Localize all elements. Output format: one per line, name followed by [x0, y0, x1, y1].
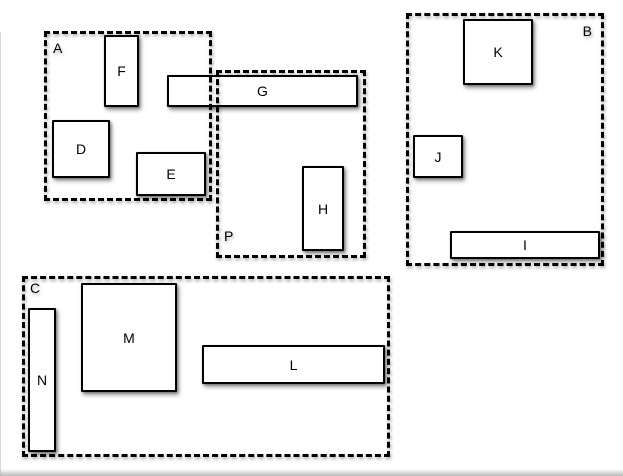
- group-c-label: C: [30, 281, 40, 295]
- shape-j: J: [413, 135, 463, 178]
- shape-i-label: I: [523, 237, 527, 253]
- window-edge-bottom: [0, 469, 623, 476]
- shape-n: N: [28, 308, 56, 452]
- shape-f-label: F: [117, 63, 126, 79]
- shape-l-label: L: [290, 357, 298, 373]
- shape-e: E: [136, 152, 206, 196]
- shape-h: H: [302, 166, 344, 251]
- shape-m-label: M: [123, 330, 135, 346]
- shape-j-label: J: [435, 149, 442, 165]
- diagram-canvas: F D E G H K J I N M L A P B C: [0, 0, 623, 476]
- shape-g-label: G: [257, 83, 268, 99]
- shape-i: I: [450, 231, 600, 259]
- group-b-label: B: [583, 24, 592, 38]
- shape-m: M: [81, 283, 177, 392]
- shape-g: G: [167, 75, 358, 107]
- group-a-label: A: [53, 41, 62, 55]
- window-edge-left: [0, 32, 1, 476]
- shape-n-label: N: [37, 372, 47, 388]
- shape-k-label: K: [493, 44, 502, 60]
- shape-d: D: [52, 120, 110, 178]
- shape-e-label: E: [166, 166, 175, 182]
- shape-f: F: [104, 35, 139, 107]
- shape-h-label: H: [318, 201, 328, 217]
- shape-k: K: [463, 19, 533, 85]
- group-p-label: P: [224, 229, 233, 243]
- shape-d-label: D: [76, 141, 86, 157]
- shape-l: L: [202, 345, 385, 384]
